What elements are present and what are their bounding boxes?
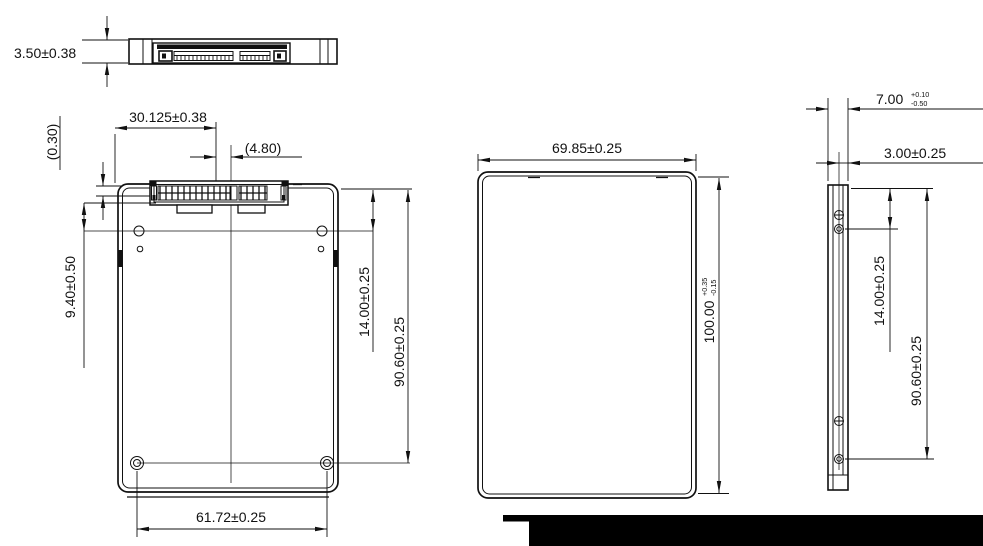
dim-side-hole-label: 9.40±0.50 — [62, 256, 78, 318]
dim-body-height-tol-minus: -0.50 — [911, 99, 927, 108]
dim-thickness: 3.50±0.38 — [14, 16, 128, 87]
drive-top-outline — [478, 172, 696, 498]
redacted-footer-bar — [503, 515, 983, 546]
view-side-profile: 3.50±0.38 — [14, 16, 337, 87]
dim-hole-span-left-label: 90.60±0.25 — [391, 317, 407, 387]
sata-connector — [150, 181, 302, 213]
dim-hole-span-right-label: 90.60±0.25 — [908, 336, 924, 406]
view-side-right: 7.00 +0.10 -0.50 3.00±0.25 14.00±0.25 90… — [806, 90, 983, 490]
dim-bottom-hole-spacing-label: 61.72±0.25 — [196, 509, 266, 525]
dim-hole-span-right: 90.60±0.25 — [845, 189, 934, 459]
dim-hole-face-offset-label: 3.00±0.25 — [884, 145, 946, 161]
dim-thickness-label: 3.50±0.38 — [14, 45, 76, 61]
dim-hole-span-left: 90.60±0.25 — [391, 190, 408, 463]
dim-body-width: 69.85±0.25 — [478, 140, 696, 171]
drive-top-inner — [483, 176, 692, 494]
dim-connector-offset-label: 30.125±0.38 — [129, 109, 207, 125]
connector-foot — [177, 205, 212, 213]
dim-body-length-label: 100.00 — [701, 300, 717, 343]
dim-hole-from-top-left-label: 14.00±0.25 — [356, 267, 372, 337]
dim-hole-from-top-right-label: 14.00±0.25 — [871, 256, 887, 326]
dim-hole-from-top-right: 14.00±0.25 — [845, 189, 933, 353]
dim-hole-face-offset: 3.00±0.25 — [816, 145, 983, 163]
dim-body-height-tol-plus: +0.10 — [911, 90, 929, 99]
dim-connector-to-center-label: (4.80) — [245, 140, 282, 156]
dim-side-hole-from-edge: 9.40±0.50 — [62, 203, 156, 368]
drive-bottom-outline — [118, 184, 338, 492]
dim-connector-recess: (0.30) — [44, 116, 150, 220]
drive-bottom-inner — [123, 188, 334, 488]
dim-body-height: 7.00 +0.10 -0.50 — [806, 90, 983, 181]
dim-connector-offset: 30.125±0.38 — [115, 109, 216, 183]
connector-foot — [238, 205, 265, 213]
sata-connector-profile — [153, 43, 290, 63]
dim-body-length-tol-plus: +0.35 — [700, 278, 709, 296]
dim-body-length-tol-minus: -0.15 — [709, 280, 718, 296]
view-top: 69.85±0.25 100.00 +0.35 -0.15 — [478, 140, 729, 498]
dim-connector-recess-label: (0.30) — [44, 124, 60, 161]
ssd-outline-drawing: 3.50±0.38 — [0, 0, 983, 546]
dim-bottom-hole-spacing: 61.72±0.25 — [137, 471, 327, 537]
view-bottom: 30.125±0.38 (0.30) (4.80) 9.40±0.50 14.0… — [44, 109, 412, 537]
dim-body-width-label: 69.85±0.25 — [552, 140, 622, 156]
side-mount-holes — [119, 226, 339, 267]
dim-connector-to-center: (4.80) — [190, 140, 302, 157]
dim-body-height-label: 7.00 — [876, 91, 903, 107]
dim-body-length: 100.00 +0.35 -0.15 — [698, 177, 729, 494]
